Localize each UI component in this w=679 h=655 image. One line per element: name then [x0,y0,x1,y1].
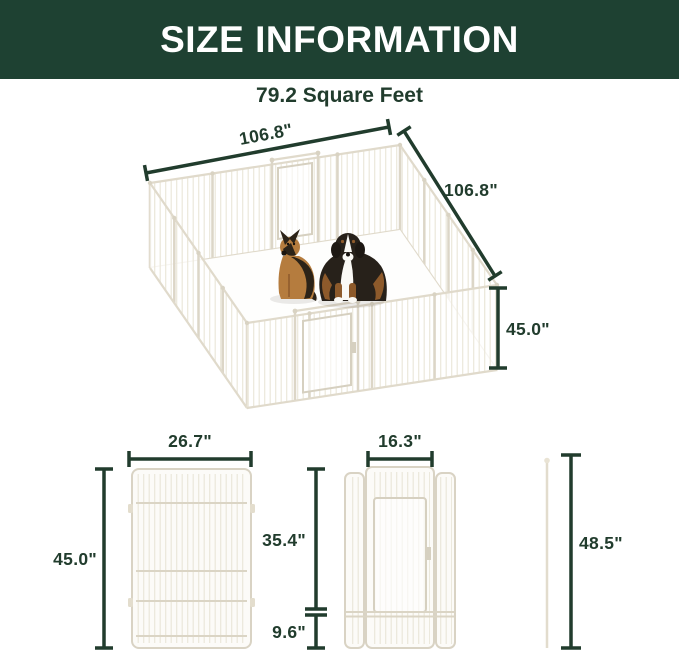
door-panel-diagram: 16.3" 35.4" 9.6" [262,431,455,648]
dimension-panel-height: 45.0" [53,469,113,648]
door-latch [352,342,356,353]
dimension-pen-height: 45.0" [489,288,550,368]
door-outline [374,498,426,612]
upper-height-label: 35.4" [262,530,306,550]
panel-width-label: 26.7" [168,431,212,451]
dimension-rod-height: 48.5" [561,455,623,648]
panel-height-label: 45.0" [53,549,97,569]
area-subtitle: 79.2 Square Feet [0,84,679,108]
lower-height-label: 9.6" [272,622,306,642]
panel-diagram: 26.7" 45.0" [53,431,255,648]
door-panel-latch [427,547,431,560]
door-width-label: 16.3" [378,431,422,451]
rod-diagram: 48.5" [544,455,623,648]
pen-height-label: 45.0" [506,319,550,339]
product-size-infographic: 106.8" 106.8" 45.0" 26.7" 45.0 [0,0,679,655]
dimension-lower-height: 9.6" [272,615,327,648]
dimension-door-width: 16.3" [368,431,432,467]
dimension-panel-width: 26.7" [129,431,251,467]
top-width-label: 106.8" [238,119,295,149]
rod-height-label: 48.5" [579,533,623,553]
header-banner: SIZE INFORMATION [0,0,679,79]
depth-label: 106.8" [444,180,498,200]
dimension-upper-height: 35.4" [262,469,327,609]
page-title: SIZE INFORMATION [160,19,519,61]
